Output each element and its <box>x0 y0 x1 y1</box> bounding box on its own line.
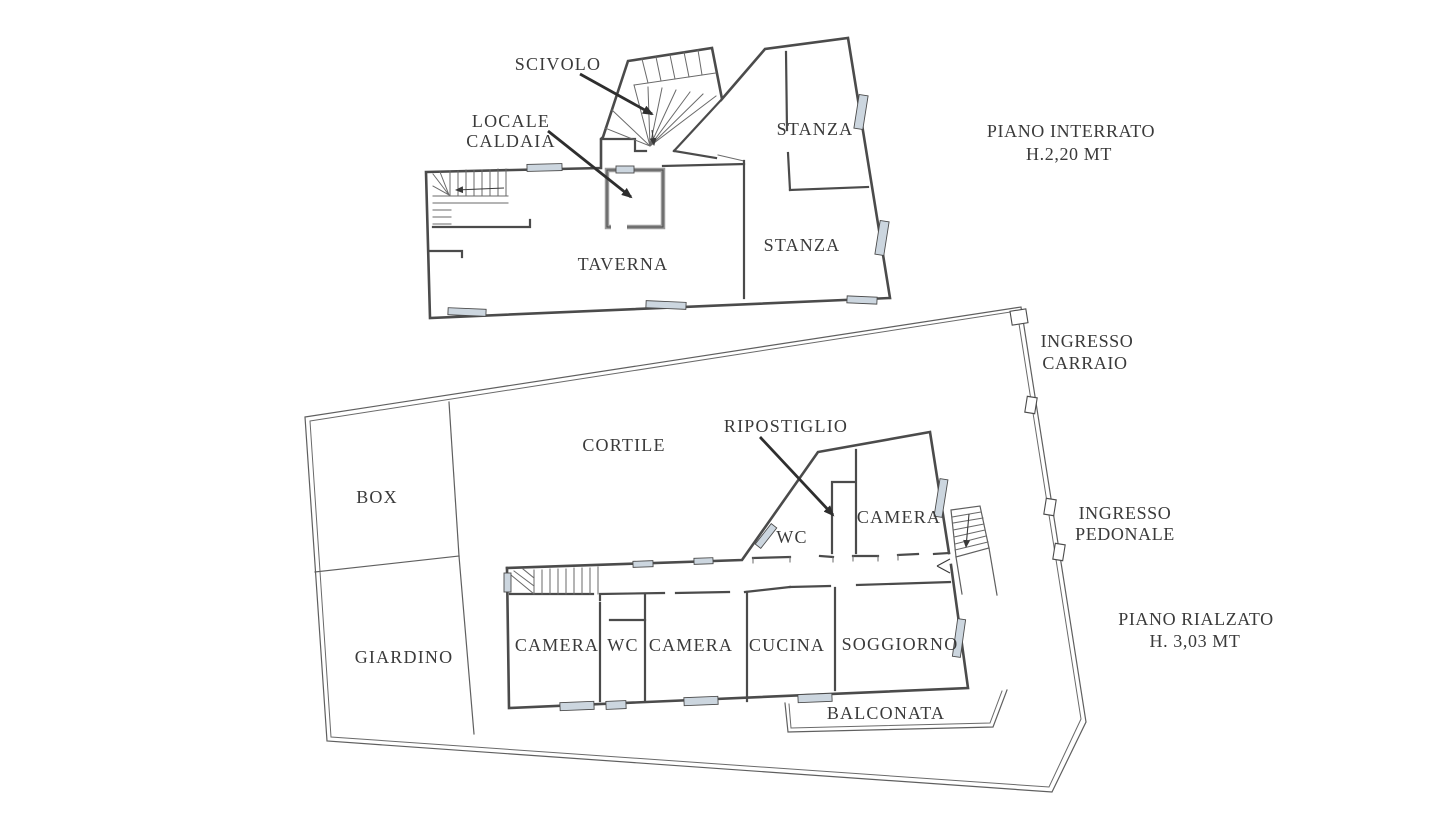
scivolo-ramp <box>605 50 722 151</box>
gate-carraio <box>1025 396 1037 413</box>
label-balconata: BALCONATA <box>827 703 945 723</box>
scivolo-landing-walls <box>601 139 646 151</box>
taverna-wall-stub <box>430 251 462 257</box>
label-ingresso-pedonale-1: INGRESSO <box>1079 503 1172 523</box>
label-box: BOX <box>356 487 398 507</box>
interrato-outline <box>426 38 890 318</box>
label-ingresso-carraio-2: CARRAIO <box>1042 353 1127 373</box>
stanza-top-bottom-wall <box>790 187 868 190</box>
external-staircase <box>951 506 997 595</box>
title-piano-rialzato: PIANO RIALZATO <box>1118 609 1274 629</box>
label-wc-top: WC <box>776 527 807 547</box>
title-rialzato-height: H. 3,03 MT <box>1150 631 1241 651</box>
label-stanza-top: STANZA <box>777 119 854 139</box>
title-piano-interrato: PIANO INTERRATO <box>987 121 1155 141</box>
site-boundary-outer <box>305 307 1086 792</box>
rialzato-partitions <box>510 450 950 701</box>
label-camera-top: CAMERA <box>857 507 941 527</box>
label-camera-mid: CAMERA <box>649 635 733 655</box>
hall-north-wall <box>753 553 949 558</box>
label-cucina: CUCINA <box>749 635 825 655</box>
label-ingresso-pedonale-2: PEDONALE <box>1075 524 1175 544</box>
label-camera-left: CAMERA <box>515 635 599 655</box>
plan-interrato: SCIVOLO LOCALE CALDAIA STANZA STANZA TAV… <box>426 38 1155 318</box>
parcel-lines <box>315 402 474 734</box>
taverna-hall-wall <box>663 164 744 166</box>
site-boundary-inner <box>310 311 1081 787</box>
hall-wall <box>674 151 716 158</box>
boundary-corner-post <box>1010 309 1028 325</box>
label-cortile: CORTILE <box>582 435 665 455</box>
scivolo-callout-arrow <box>580 74 652 114</box>
box-right-line <box>449 402 459 556</box>
boiler-window <box>616 166 634 173</box>
label-locale: LOCALE <box>472 111 550 131</box>
apartment-outline-top <box>507 432 949 568</box>
box-giardino-divider <box>315 556 459 572</box>
label-wc-bottom: WC <box>607 635 638 655</box>
label-stanza-bottom: STANZA <box>764 235 841 255</box>
gate-pedonale <box>1044 498 1056 515</box>
stair-direction-arrow <box>456 188 504 190</box>
ripostiglio-walls <box>832 450 856 553</box>
label-giardino: GIARDINO <box>355 647 454 667</box>
stanza-bottom-door-leaf <box>718 155 744 161</box>
gate-secondary <box>1053 543 1065 560</box>
plan-rialzato: CORTILE RIPOSTIGLIO CAMERA WC CAMERA WC … <box>305 307 1274 792</box>
external-stair-arrow <box>966 514 969 547</box>
label-soggiorno: SOGGIORNO <box>842 634 959 654</box>
floorplan-page: SCIVOLO LOCALE CALDAIA STANZA STANZA TAV… <box>0 0 1440 821</box>
interrato-staircase <box>433 169 530 227</box>
title-interrato-height: H.2,20 MT <box>1026 144 1112 164</box>
label-taverna: TAVERNA <box>578 254 669 274</box>
rialzato-staircase <box>511 567 598 594</box>
scivolo-right-wall <box>674 99 722 151</box>
hall-south-wall-right <box>790 582 950 587</box>
ripostiglio-callout-arrow <box>760 437 833 515</box>
boiler-room <box>607 166 663 232</box>
label-ripostiglio: RIPOSTIGLIO <box>724 416 848 436</box>
boiler-door-opening <box>611 222 627 232</box>
entry-door-mark <box>937 559 950 573</box>
floorplan-canvas: SCIVOLO LOCALE CALDAIA STANZA STANZA TAV… <box>0 0 1440 821</box>
giardino-right-line <box>459 556 474 734</box>
label-caldaia: CALDAIA <box>466 131 555 151</box>
label-scivolo: SCIVOLO <box>515 54 601 74</box>
label-ingresso-carraio-1: INGRESSO <box>1041 331 1134 351</box>
